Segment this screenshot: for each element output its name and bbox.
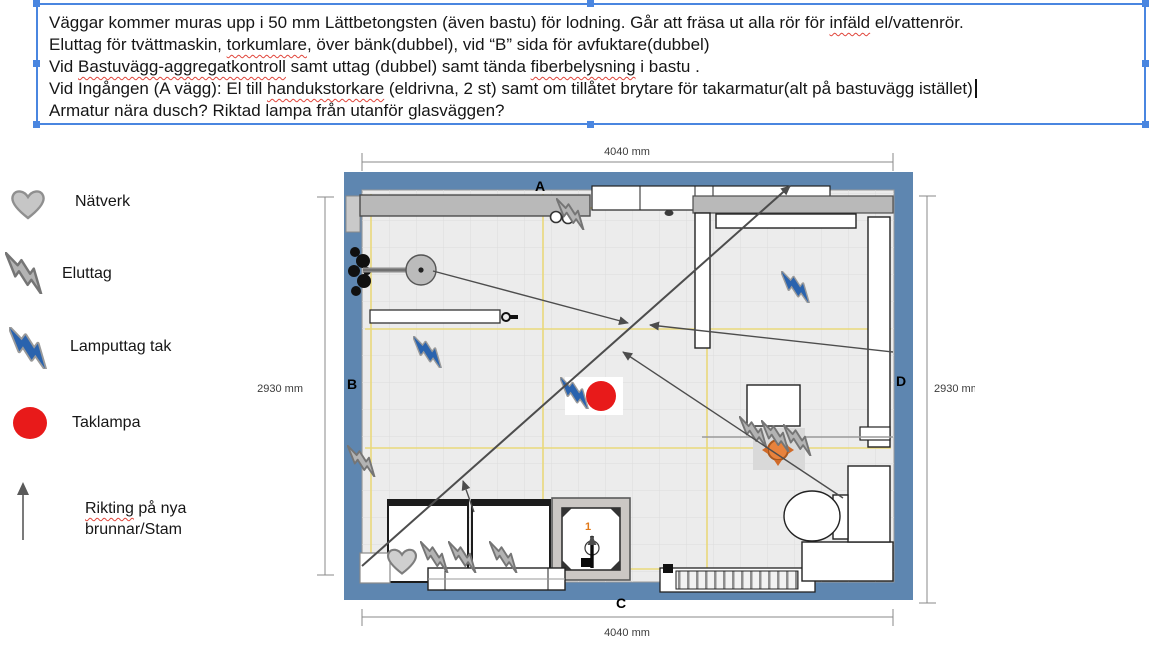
dim-right: 2930 mm	[934, 383, 975, 395]
legend-label-natverk: Nätverk	[75, 193, 130, 211]
selection-handle[interactable]	[1142, 60, 1149, 67]
legend-label-eluttag: Eluttag	[62, 265, 112, 283]
selection-handle[interactable]	[33, 60, 40, 67]
heart-icon	[8, 185, 48, 223]
dim-top: 4040 mm	[604, 146, 650, 158]
sauna-stool	[747, 385, 800, 426]
note-line[interactable]: Eluttag för tvättmaskin, torkumlare, öve…	[49, 34, 1144, 56]
legend-label-lamputtag: Lamputtag tak	[70, 338, 171, 356]
wall-label-b: B	[347, 376, 357, 392]
note-textbox[interactable]: Väggar kommer muras upp i 50 mm Lättbeto…	[36, 3, 1146, 125]
selection-handle[interactable]	[587, 0, 594, 7]
legend-item-natverk	[8, 185, 48, 228]
legend-label-taklampa: Taklampa	[72, 414, 140, 432]
note-line[interactable]: Vid Ingången (A vägg): El till handuksto…	[49, 78, 1144, 100]
dim-left: 2930 mm	[257, 383, 303, 395]
selection-handle[interactable]	[1142, 121, 1149, 128]
floor-plan-image[interactable]: 1	[255, 140, 975, 645]
dim-bottom: 4040 mm	[604, 627, 650, 639]
selection-handle[interactable]	[33, 0, 40, 7]
wall-label-c: C	[616, 595, 626, 611]
selection-handle[interactable]	[1142, 0, 1149, 7]
legend-item-eluttag	[5, 252, 47, 299]
radiator	[660, 564, 815, 592]
selection-handle[interactable]	[587, 121, 594, 128]
arrow-up-icon	[12, 480, 34, 542]
legend-label-riktning: Rikting på nya brunnar/Stam	[85, 498, 186, 540]
corner-box	[360, 553, 390, 583]
wall-label-a: A	[535, 178, 545, 194]
note-line[interactable]: Armatur nära dusch? Riktad lampa från ut…	[49, 100, 1144, 122]
towel-rail	[370, 310, 518, 323]
drain-number: 1	[585, 521, 591, 533]
wall-label-d: D	[896, 373, 906, 389]
selection-handle[interactable]	[33, 121, 40, 128]
note-line[interactable]: Väggar kommer muras upp i 50 mm Lättbeto…	[49, 12, 1144, 34]
lightning-gray-icon	[5, 252, 47, 294]
note-line[interactable]: Vid Bastuvägg-aggregatkontroll samt utta…	[49, 56, 1144, 78]
bench	[428, 568, 565, 590]
lightning-blue-icon	[9, 327, 51, 369]
text-caret	[975, 79, 977, 98]
legend-item-riktning	[12, 480, 34, 547]
legend-item-lamputtag	[9, 327, 51, 374]
red-circle-icon	[13, 407, 47, 439]
note-text[interactable]: Väggar kommer muras upp i 50 mm Lättbeto…	[38, 5, 1144, 122]
legend-item-taklampa	[13, 407, 47, 439]
